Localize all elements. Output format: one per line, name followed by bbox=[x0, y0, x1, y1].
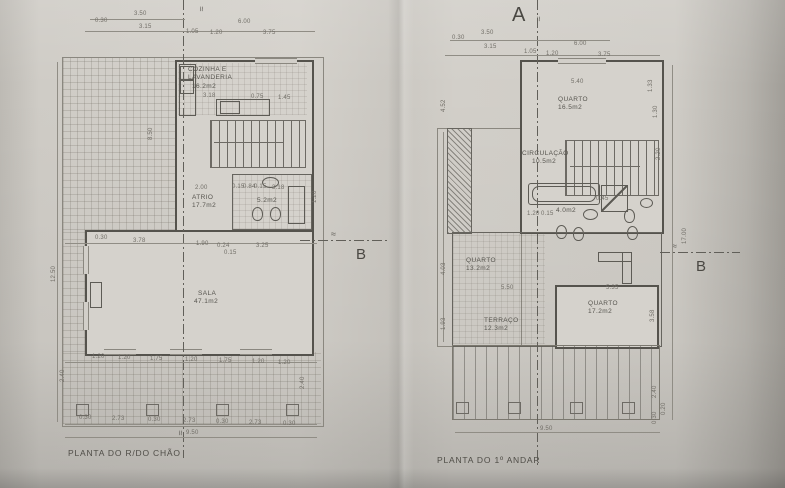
dim-line bbox=[65, 243, 317, 244]
dim-label: 12.50 bbox=[51, 266, 57, 282]
dim-label: 1.75 bbox=[219, 358, 231, 364]
dim-label: 1.20 bbox=[118, 355, 130, 361]
section-line-a-left bbox=[183, 0, 184, 458]
dim-label: 0.15 bbox=[541, 211, 553, 217]
dim-line bbox=[443, 132, 444, 342]
paper-shadow bbox=[0, 468, 785, 488]
dim-label: 3.75 bbox=[263, 30, 275, 36]
left-plan-side-tiles bbox=[63, 230, 85, 352]
shower-stall bbox=[288, 186, 305, 224]
section-line-b-left bbox=[300, 240, 388, 241]
dim-line bbox=[65, 424, 317, 425]
quarto1-window bbox=[558, 58, 606, 64]
kitchen-window bbox=[255, 58, 297, 64]
dim-label: 1.20 bbox=[210, 30, 222, 36]
dim-label: 5.40 bbox=[571, 79, 583, 85]
right-plan-hatched-wall bbox=[447, 128, 472, 234]
stairs-arrow bbox=[570, 166, 640, 167]
right-plan-title: PLANTA DO 1º ANDAR bbox=[437, 455, 540, 465]
break-line-icon: ≈ bbox=[533, 17, 543, 22]
room-area: 10.5m2 bbox=[532, 158, 556, 165]
dim-label: 0.30 bbox=[216, 419, 228, 425]
dim-label: 2.73 bbox=[112, 416, 124, 422]
dim-label: 1.90 bbox=[196, 241, 208, 247]
dim-label: 0.30 bbox=[79, 415, 91, 421]
pillar bbox=[622, 402, 635, 414]
dim-label: 0.24 bbox=[217, 243, 229, 249]
dim-label: 2.40 bbox=[652, 386, 658, 398]
dim-label: 0.15 bbox=[254, 184, 266, 190]
dim-label: 0.30 bbox=[95, 235, 107, 241]
dim-label: 4.03 bbox=[441, 263, 447, 275]
dim-label: 2.73 bbox=[183, 418, 195, 424]
dim-label: 2.40 bbox=[60, 370, 66, 382]
dim-label: 0.20 bbox=[661, 403, 667, 415]
section-marker-a: A bbox=[512, 4, 525, 27]
sala-window bbox=[83, 246, 89, 274]
dim-label: 6.00 bbox=[238, 19, 250, 25]
paper-fold bbox=[388, 0, 414, 488]
room-label: LAVANDERIA bbox=[188, 74, 232, 81]
toilet-icon bbox=[270, 207, 281, 221]
pillar bbox=[146, 404, 159, 416]
dim-label: 2.20 bbox=[656, 148, 662, 160]
dim-label: 1.20 bbox=[185, 357, 197, 363]
dim-label: 17.00 bbox=[682, 228, 688, 244]
left-plan-title: PLANTA DO R/DO CHÃO bbox=[68, 448, 181, 458]
dim-label: 1.93 bbox=[441, 318, 447, 330]
room-area: 13.2m2 bbox=[466, 265, 490, 272]
room-area: 16.2m2 bbox=[192, 83, 216, 90]
dim-label: 0.30 bbox=[652, 412, 658, 424]
dim-label: 0.30 bbox=[283, 421, 295, 427]
break-line-icon: ≈ bbox=[196, 7, 206, 12]
dim-label: 1.45 bbox=[278, 95, 290, 101]
dim-label: 6.00 bbox=[574, 41, 586, 47]
room-label: QUARTO bbox=[588, 300, 618, 307]
sink-icon bbox=[583, 209, 598, 220]
dim-label: 1.20 bbox=[312, 191, 318, 203]
quarto3-room bbox=[555, 285, 659, 349]
room-area: 5.2m2 bbox=[257, 197, 277, 204]
dim-label: 3.15 bbox=[484, 44, 496, 50]
dim-label: 1.05 bbox=[186, 29, 198, 35]
sala-window bbox=[83, 302, 89, 330]
dim-label: 1.20 bbox=[527, 211, 539, 217]
dim-label: 2.40 bbox=[300, 377, 306, 389]
dim-label: 3.18 bbox=[203, 93, 215, 99]
dim-label: 5.50 bbox=[501, 285, 513, 291]
sala-door-opening bbox=[240, 349, 272, 355]
room-area: 17.2m2 bbox=[588, 308, 612, 315]
dim-label: 1.20 bbox=[278, 360, 290, 366]
dim-label: 1.75 bbox=[150, 356, 162, 362]
dim-line bbox=[85, 31, 315, 32]
dim-label: 1.33 bbox=[648, 80, 654, 92]
room-label: SALA bbox=[198, 290, 216, 297]
room-label: QUARTO bbox=[558, 96, 588, 103]
left-plan-patio-tiles bbox=[63, 58, 175, 230]
bathtub-inner bbox=[532, 186, 596, 202]
dim-label: 3.58 bbox=[650, 310, 656, 322]
dim-label: 0.75 bbox=[251, 94, 263, 100]
dim-label: 9.50 bbox=[540, 426, 552, 432]
dim-label: 9.50 bbox=[186, 430, 198, 436]
pillar bbox=[286, 404, 299, 416]
break-line-icon: ≈ bbox=[331, 229, 336, 239]
dim-label: 3.75 bbox=[598, 52, 610, 58]
dim-label: 3.50 bbox=[481, 30, 493, 36]
stairs-arrow bbox=[214, 142, 284, 143]
pillar bbox=[216, 404, 229, 416]
room-label: CIRCULAÇÃO bbox=[522, 150, 569, 157]
dim-line bbox=[455, 432, 660, 433]
dim-label: 3.25 bbox=[256, 243, 268, 249]
dim-label: 0.30 bbox=[452, 35, 464, 41]
dim-label: 5.35 bbox=[606, 285, 618, 291]
dim-label: 1.20 bbox=[252, 359, 264, 365]
dim-label: 3.15 bbox=[139, 24, 151, 30]
section-marker-b: B bbox=[356, 246, 366, 263]
dim-label: 0.30 bbox=[95, 18, 107, 24]
dim-label: 3.78 bbox=[133, 238, 145, 244]
toilet-icon bbox=[252, 207, 263, 221]
pillar bbox=[508, 402, 521, 414]
kitchen-appliance-2 bbox=[220, 101, 240, 114]
section-line-a-right bbox=[537, 0, 538, 465]
room-label: COZINHA E bbox=[188, 66, 227, 73]
left-plan-stairs bbox=[210, 120, 306, 168]
toilet-icon bbox=[624, 209, 635, 223]
closet bbox=[622, 252, 632, 284]
dim-label: 1.30 bbox=[653, 106, 659, 118]
fireplace bbox=[90, 282, 102, 308]
dim-label: 2.00 bbox=[195, 185, 207, 191]
room-area: 4.0m2 bbox=[556, 207, 576, 214]
pillar bbox=[456, 402, 469, 414]
sala-door-opening bbox=[170, 349, 202, 355]
dim-label: 0.45 bbox=[596, 196, 608, 202]
dim-label: 3.18 bbox=[272, 185, 284, 191]
dim-line bbox=[672, 65, 673, 420]
break-line-icon: ≈ bbox=[175, 431, 185, 436]
sink-icon bbox=[640, 198, 653, 208]
dim-label: 4.52 bbox=[441, 100, 447, 112]
dim-label: 1.20 bbox=[92, 354, 104, 360]
room-label: ATRIO bbox=[192, 194, 213, 201]
dim-label: 0.15 bbox=[224, 250, 236, 256]
dim-label: 8.50 bbox=[148, 128, 154, 140]
room-label: TERRAÇO bbox=[484, 317, 519, 324]
dim-line bbox=[65, 437, 317, 438]
dim-label: 1.20 bbox=[546, 51, 558, 57]
room-area: 16.5m2 bbox=[558, 104, 582, 111]
room-area: 47.1m2 bbox=[194, 298, 218, 305]
dim-label: 2.73 bbox=[249, 420, 261, 426]
dim-label: 1.05 bbox=[524, 49, 536, 55]
floor-plan-photo: ≈ ≈ ≈ B 0.30 3.50 3.15 1.05 1.20 6.00 3.… bbox=[0, 0, 785, 488]
pillar bbox=[570, 402, 583, 414]
section-marker-b: B bbox=[696, 258, 706, 275]
dim-label: 3.50 bbox=[134, 11, 146, 17]
dim-label: 0.30 bbox=[148, 417, 160, 423]
room-area: 17.7m2 bbox=[192, 202, 216, 209]
dim-line bbox=[57, 62, 58, 422]
room-area: 12.3m2 bbox=[484, 325, 508, 332]
room-label: QUARTO bbox=[466, 257, 496, 264]
